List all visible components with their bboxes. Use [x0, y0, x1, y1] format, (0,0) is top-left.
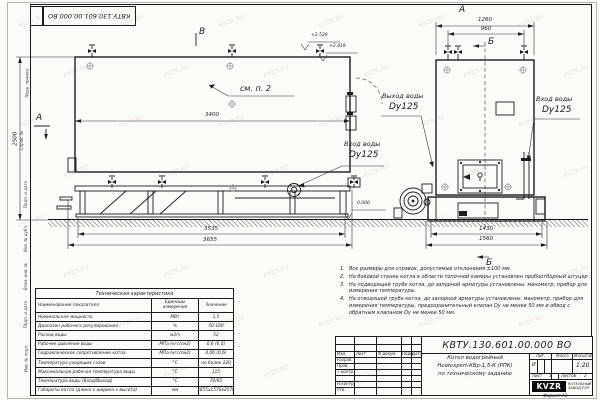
col-header-value: Значение	[199, 299, 233, 312]
sheets-value: 2	[584, 374, 587, 378]
row-razrab: Разраб.	[337, 358, 353, 362]
margin-label: Взам. инв. №	[23, 263, 28, 290]
ground-hatch	[48, 219, 588, 227]
row-tkontr: Т.контр.	[337, 370, 354, 374]
spec-table-title: Техническая характеристика	[36, 289, 233, 298]
doc-number: КВТУ.130.601.00.000 ВО	[424, 339, 590, 351]
side-inlet-dn: Dy125	[349, 151, 378, 160]
col-izm: Изм.	[337, 352, 346, 356]
elevation-ground: 0.000	[357, 202, 370, 207]
margin-label: Инв. № подл.	[23, 345, 28, 373]
top-stamp-number: КВТУ.130.601.00.000 ВО	[48, 12, 130, 20]
col-data: Дата	[412, 352, 422, 356]
elevation-1: +2.539	[311, 34, 328, 39]
doc-title-line3: по техническому заданию	[423, 371, 527, 379]
elevation-2: +2.419	[329, 45, 346, 50]
margin-label: Перв. примен.	[25, 67, 30, 97]
company-line2: ЗАВОД РЭП	[568, 386, 591, 390]
row-prov: Пров.	[337, 364, 349, 368]
note-number: 2.	[340, 274, 349, 281]
view-label-a-front: А	[459, 6, 465, 15]
dim-front-total: 1560	[479, 237, 493, 243]
section-label-b-top: Б	[488, 38, 494, 47]
table-row: Гидравлическое сопротивление котлаМПа (к…	[36, 349, 233, 358]
note-text: Все размеры для справок, допустимые откл…	[349, 266, 592, 273]
margin-label: Подп. и дата	[23, 181, 28, 208]
spec-table-header: Наименование показателя Единицы измерени…	[36, 298, 233, 312]
col-header-units: Единицы измерения	[151, 299, 199, 312]
front-inlet-label: Вход воды	[536, 96, 572, 103]
company-name: КОТЕЛЬНЫЙ ЗАВОД РЭП	[568, 382, 591, 391]
note-reference: см. п. 2	[240, 85, 271, 93]
margin-label: Подп. и дата	[23, 301, 28, 328]
row-nkontr: Н.контр.	[337, 382, 355, 386]
title-block: Изм. Лист N докум. Подп. Дата Разраб. Пр…	[335, 336, 593, 396]
front-inlet-dn: Dy125	[542, 106, 571, 115]
drawing-sheet: КВТУ.130.601.00.000 ВО Перв. примен. Спр…	[0, 0, 600, 400]
notes-block: 1. Все размеры для справок, допустимые о…	[340, 266, 592, 317]
front-outlet-label: Выход воды	[382, 93, 423, 100]
dim-side-height: 2500	[13, 132, 19, 146]
note-number: 1.	[340, 266, 349, 273]
note-number: 4.	[340, 296, 349, 316]
format-label: Формат А3	[543, 395, 567, 399]
sheets-label: Листов	[561, 374, 576, 378]
side-inlet-label: Вход воды	[344, 141, 380, 148]
dim-front-width: 1260	[478, 18, 492, 24]
sheet-value: 1	[549, 374, 552, 378]
doc-title-line2: Heatexpert-КВр-1,5-К (РПК)	[423, 363, 527, 371]
note-text: На подводящей трубе котла, до запорной а…	[349, 282, 592, 296]
note-item: 2. На боковой стенке котла в области топ…	[340, 274, 592, 281]
dim-front-base: 1430	[479, 227, 493, 233]
dim-side-base: 3535	[204, 227, 218, 233]
section-label-v: В	[199, 28, 205, 37]
doc-title: Котел водогрейный Heatexpert-КВр-1,5-К (…	[423, 355, 527, 379]
table-row: Габариты котла (длина х ширина х высота)…	[36, 386, 233, 395]
note-number: 3.	[340, 282, 349, 296]
spec-table: Техническая характеристика Наименование …	[35, 288, 234, 396]
doc-title-line1: Котел водогрейный	[423, 355, 527, 363]
table-row: Расход водым3/ч52	[36, 330, 233, 339]
col-header-name: Наименование показателя	[36, 299, 151, 312]
scale-value: 1:20	[576, 363, 589, 369]
col-list: Лист	[356, 352, 366, 356]
note-item: 4. На отводящей трубе котла, до запорной…	[340, 296, 592, 316]
mass-label: Масса	[556, 354, 569, 358]
dim-front-valves: 960	[481, 27, 492, 33]
note-item: 1. Все размеры для справок, допустимые о…	[340, 266, 592, 273]
top-stamp: КВТУ.130.601.00.000 ВО	[42, 6, 136, 26]
table-row: Рабочее давление водыМПа (кгс/см2)0,6 (6…	[36, 340, 233, 349]
sheet-label: Лист	[532, 374, 542, 378]
table-row: Максимальная рабочая температура воды°С1…	[36, 367, 233, 376]
company-logo: KVZR	[532, 381, 566, 392]
col-ndoc: N докум.	[378, 352, 397, 356]
table-row: Температура уходящих газов°Сне более 220	[36, 358, 233, 367]
view-label-a-side: А	[36, 114, 42, 123]
dim-side-length: 3400	[205, 113, 219, 119]
table-row: Температура воды (Вход/Выход)°С70/95	[36, 377, 233, 386]
note-text: На отводящей трубе котла, до запорной ар…	[349, 296, 592, 316]
lit-value: И	[532, 363, 536, 368]
table-row: Номинальная мощностьМВт1,5	[36, 312, 233, 321]
lit-label: Лит.	[536, 354, 545, 358]
front-outlet-dn: Dy125	[389, 103, 418, 112]
note-item: 3. На подводящей трубе котла, до запорно…	[340, 282, 592, 296]
note-text: На боковой стенке котла в области топочн…	[349, 274, 592, 281]
margin-label: Инв. № дубл.	[23, 225, 28, 252]
dim-side-total: 3655	[203, 238, 217, 244]
margin-label: Справ. №	[19, 131, 24, 150]
table-row: Диапазон рабочего регулирования%50-100	[36, 321, 233, 330]
row-utv: Утв.	[337, 388, 345, 392]
scale-label: Масштаб	[574, 354, 593, 358]
